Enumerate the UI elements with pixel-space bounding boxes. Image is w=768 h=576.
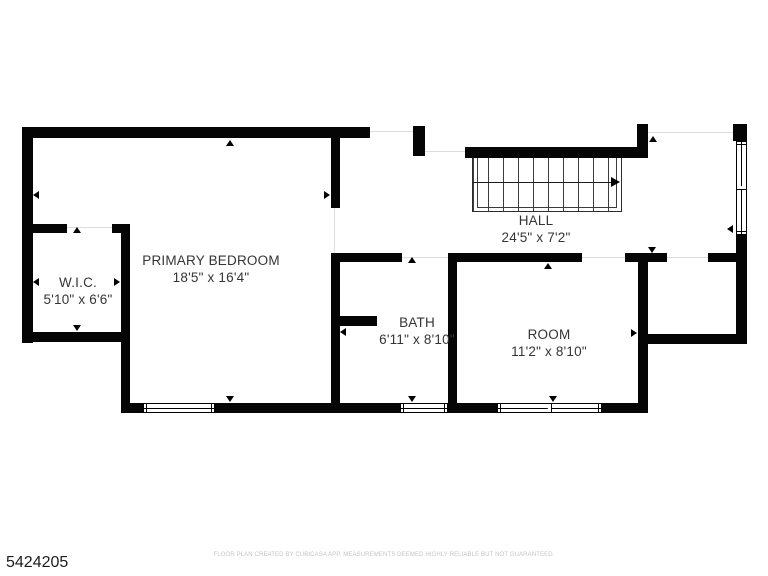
window-pane (498, 404, 548, 412)
stair-inner-outline (477, 158, 617, 208)
stair-direction-arrow-icon (611, 177, 620, 187)
stair-run-line (473, 182, 611, 183)
wall-bottom-c (448, 403, 497, 413)
wall-alcove-bottom (640, 334, 747, 344)
room-dims: 5'10" x 6'6" (44, 291, 113, 308)
marker-icon (549, 396, 557, 402)
wall-bottom-b (215, 403, 400, 413)
wall-left-outer (22, 127, 33, 343)
wall-hall-alcove-right (708, 253, 736, 262)
listing-id: 5424205 (6, 554, 68, 572)
opening-line (425, 151, 465, 152)
wall-top-stub (413, 126, 425, 156)
marker-icon (324, 191, 330, 199)
wall-room-right (638, 253, 648, 413)
wall-bottom-a (121, 403, 143, 413)
marker-icon (226, 396, 234, 402)
staircase (472, 158, 622, 212)
opening-line (648, 132, 733, 133)
room-label-wic: W.I.C. 5'10" x 6'6" (44, 274, 113, 308)
wall-hall-room (448, 253, 582, 262)
window-pane (551, 404, 602, 412)
marker-icon (340, 328, 346, 336)
floor-plan: PRIMARY BEDROOM 18'5" x 16'4" W.I.C. 5'1… (0, 0, 768, 576)
marker-icon (648, 247, 656, 253)
window-pane (144, 404, 214, 412)
marker-icon (408, 257, 416, 263)
marker-icon (33, 278, 39, 286)
wall-top-left (22, 127, 370, 138)
room-dims: 6'11" x 8'10" (379, 331, 455, 348)
room-name: ROOM (511, 326, 587, 343)
room-label-bath: BATH 6'11" x 8'10" (379, 314, 455, 348)
marker-icon (631, 329, 637, 337)
wall-bedroom-right-upper (331, 127, 340, 208)
wall-bottom-d (602, 403, 648, 413)
marker-icon (73, 227, 81, 233)
wall-wic-top-left (33, 224, 67, 233)
window-hall-right (736, 141, 747, 235)
room-name: BATH (379, 314, 455, 331)
wall-wic-bottom (22, 332, 121, 342)
opening-line (582, 257, 625, 258)
marker-icon (727, 225, 733, 233)
wall-wic-right (121, 224, 130, 413)
window-bedroom (143, 403, 215, 413)
window-room (497, 403, 602, 413)
marker-icon (408, 396, 416, 402)
window-pane (737, 142, 746, 186)
room-name: W.I.C. (44, 274, 113, 291)
wall-stair-riser (637, 124, 648, 148)
marker-icon (544, 263, 552, 269)
wall-bath-stub (332, 316, 377, 326)
wall-stair-top (465, 147, 648, 158)
window-pane (401, 404, 447, 412)
wall-top-right-corner (733, 124, 747, 141)
marker-icon (33, 191, 39, 199)
disclaimer-text: FLOOR PLAN CREATED BY CUBICASA APP. MEAS… (214, 552, 555, 558)
marker-icon (73, 325, 81, 331)
room-label-room: ROOM 11'2" x 8'10" (511, 326, 587, 360)
window-pane (737, 189, 746, 234)
marker-icon (226, 140, 234, 146)
wall-right-lower (736, 235, 747, 335)
room-label-primary-bedroom: PRIMARY BEDROOM 18'5" x 16'4" (142, 252, 280, 286)
room-dims: 24'5" x 7'2" (502, 229, 571, 246)
marker-icon (649, 136, 657, 142)
opening-line (334, 208, 335, 253)
marker-icon (114, 278, 120, 286)
wall-bath-top (332, 253, 402, 262)
wall-hall-alcove-left (625, 253, 667, 262)
opening-line (370, 131, 413, 132)
room-name: HALL (502, 212, 571, 229)
wall-bedroom-right-lower (331, 253, 340, 413)
window-bath (400, 403, 448, 413)
opening-line (667, 257, 708, 258)
room-dims: 11'2" x 8'10" (511, 343, 587, 360)
room-dims: 18'5" x 16'4" (142, 269, 280, 286)
room-name: PRIMARY BEDROOM (142, 252, 280, 269)
room-label-hall: HALL 24'5" x 7'2" (502, 212, 571, 246)
